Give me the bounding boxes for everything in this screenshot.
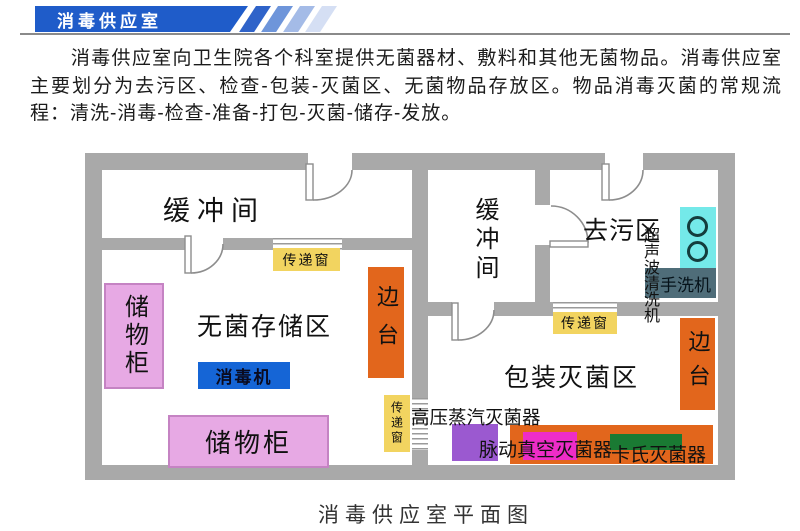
pulse-vacuum-sterilizer-label: 脉动真空灭菌器 bbox=[479, 435, 612, 462]
door-icon bbox=[185, 236, 223, 273]
door-icon bbox=[602, 164, 643, 200]
wall-segment bbox=[342, 238, 412, 250]
side-table-right: 边台 bbox=[680, 318, 715, 410]
ultrasonic-cleaner-label: 超声波清洗机 bbox=[637, 227, 661, 333]
room-label-buffer-1: 缓冲间 bbox=[163, 189, 265, 228]
wall-segment bbox=[428, 302, 452, 316]
plan-caption: 消毒供应室平面图 bbox=[318, 499, 534, 529]
sink-basin-icon bbox=[687, 241, 708, 262]
header-banner: 消毒供应室 bbox=[35, 6, 248, 32]
sink-basin-icon bbox=[687, 216, 708, 237]
wall-segment bbox=[85, 153, 102, 480]
door-icon bbox=[452, 303, 494, 340]
transfer-window-label-2: 传递窗 bbox=[553, 312, 617, 334]
cassette-sterilizer-label: 卡氏灭菌器 bbox=[611, 440, 706, 467]
header-divider bbox=[20, 33, 790, 35]
autoclave-label: 高压蒸汽灭菌器 bbox=[411, 404, 541, 430]
room-label-sterile-storage: 无菌存储区 bbox=[197, 307, 332, 343]
wall-segment bbox=[494, 302, 553, 316]
wall-segment bbox=[85, 153, 308, 170]
sink-unit bbox=[680, 207, 716, 270]
wall-segment bbox=[102, 238, 185, 250]
transfer-window-label-1: 传递窗 bbox=[273, 248, 340, 271]
intro-text: 消毒供应室向卫生院各个科室提供无菌器材、敷料和其他无菌物品。消毒供应室主要划分为… bbox=[30, 45, 782, 128]
wall-segment bbox=[223, 238, 273, 250]
room-label-buffer-2: 缓冲间 bbox=[467, 197, 502, 284]
storage-cabinet-vertical: 储物柜 bbox=[104, 283, 164, 389]
wall-segment bbox=[412, 170, 428, 398]
storage-cabinet-horizontal: 储物柜 bbox=[168, 415, 329, 468]
wall-segment bbox=[412, 450, 428, 465]
wall-segment bbox=[617, 302, 718, 316]
disinfector-unit: 消毒机 bbox=[198, 362, 290, 389]
wall-segment bbox=[352, 153, 605, 170]
transfer-window-label-3: 传递窗 bbox=[384, 395, 410, 452]
floor-plan: 缓冲间 缓冲间 去污区 无菌存储区 包装灭菌区 储物柜 储物柜 消毒机 边台 边… bbox=[85, 153, 735, 480]
side-table-left: 边台 bbox=[368, 267, 404, 378]
wall-segment bbox=[718, 153, 735, 480]
door-icon bbox=[306, 164, 352, 200]
banner-title: 消毒供应室 bbox=[35, 7, 162, 32]
wall-segment bbox=[535, 170, 550, 205]
room-label-packing-sterilization: 包装灭菌区 bbox=[504, 358, 639, 394]
